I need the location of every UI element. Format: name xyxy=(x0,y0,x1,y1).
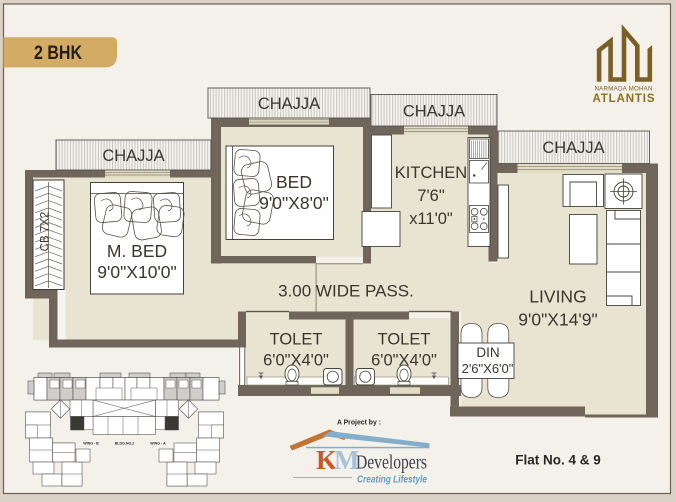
svg-text:Flat No. 4 & 9: Flat No. 4 & 9 xyxy=(515,453,601,468)
svg-text:NARMADA MOHAN: NARMADA MOHAN xyxy=(595,86,653,93)
svg-text:WING - A: WING - A xyxy=(150,442,166,446)
svg-text:CHAJJA: CHAJJA xyxy=(258,95,320,113)
svg-text:CHAJJA: CHAJJA xyxy=(542,139,604,157)
svg-text:2'6"X6'0": 2'6"X6'0" xyxy=(462,361,514,376)
svg-text:KITCHEN: KITCHEN xyxy=(395,164,467,182)
svg-text:M. BED: M. BED xyxy=(107,241,167,261)
svg-text:A Project by :: A Project by : xyxy=(337,418,381,427)
svg-text:BED: BED xyxy=(276,172,312,192)
svg-text:9'0"X10'0": 9'0"X10'0" xyxy=(97,262,176,282)
svg-text:ATLANTIS: ATLANTIS xyxy=(593,93,655,105)
svg-text:WING - B: WING - B xyxy=(83,442,99,446)
svg-text:Creating Lifestyle: Creating Lifestyle xyxy=(357,474,427,486)
svg-text:CHAJJA: CHAJJA xyxy=(102,147,164,165)
svg-text:CHAJJA: CHAJJA xyxy=(403,103,465,121)
svg-text:CB 7X2: CB 7X2 xyxy=(40,212,52,252)
svg-text:2 BHK: 2 BHK xyxy=(34,43,82,64)
svg-text:7'6": 7'6" xyxy=(417,187,445,205)
svg-text:6'0"X4'0": 6'0"X4'0" xyxy=(263,352,329,370)
svg-text:LIVING: LIVING xyxy=(529,287,586,307)
svg-text:9'0"X14'9": 9'0"X14'9" xyxy=(518,310,597,330)
svg-text:x11'0": x11'0" xyxy=(409,210,453,228)
svg-text:9'0"X8'0": 9'0"X8'0" xyxy=(259,193,329,213)
svg-text:6'0"X4'0": 6'0"X4'0" xyxy=(371,352,437,370)
svg-text:TOLET: TOLET xyxy=(378,331,431,349)
svg-text:DIN: DIN xyxy=(476,345,499,360)
svg-text:BLDG.NO.2: BLDG.NO.2 xyxy=(115,442,135,446)
svg-text:Developers: Developers xyxy=(356,453,427,474)
svg-text:TOLET: TOLET xyxy=(270,331,323,349)
svg-text:3.00 WIDE PASS.: 3.00 WIDE PASS. xyxy=(278,282,414,301)
